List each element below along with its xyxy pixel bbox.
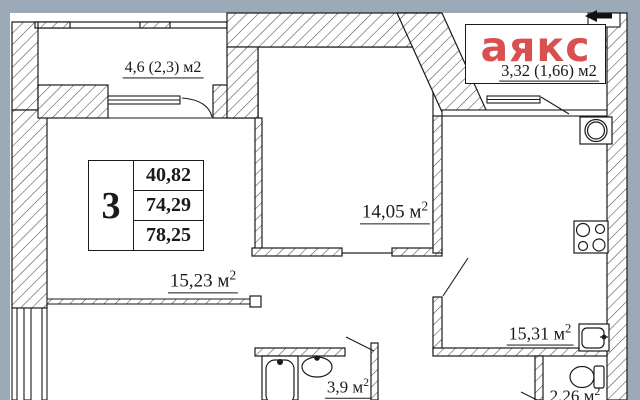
washing-machine-icon: [580, 117, 612, 144]
label-room-center: 14,05 м2: [360, 199, 430, 224]
area-total: 78,25: [134, 220, 203, 250]
area-living-total: 40,82: [134, 161, 203, 190]
apartment-info-table: 3 40,82 74,29 78,25: [88, 160, 204, 251]
kitchen-sink-icon: [579, 324, 609, 351]
area-apartment: 74,29: [134, 190, 203, 220]
stove-icon: [574, 221, 608, 253]
floor-plan-page: 3 40,82 74,29 78,25 аякс 4,6 (2,3) м2 3,…: [0, 0, 640, 400]
label-balcony-top-left: 4,6 (2,3) м2: [123, 57, 204, 78]
window-balcony-left: [108, 96, 180, 104]
label-bathroom: 3,9 м2: [325, 376, 371, 399]
bathtub-icon: [262, 356, 298, 400]
rooms-count: 3: [89, 161, 134, 250]
label-kitchen: 15,31 м2: [507, 323, 574, 346]
label-living-room: 15,23 м2: [168, 268, 238, 293]
label-balcony-top-right: 3,32 (1,66) м2: [499, 61, 599, 82]
window-left-wall: [12, 308, 47, 400]
window-balcony-right: [487, 96, 540, 103]
label-wc: 2,26 м2: [548, 385, 603, 400]
